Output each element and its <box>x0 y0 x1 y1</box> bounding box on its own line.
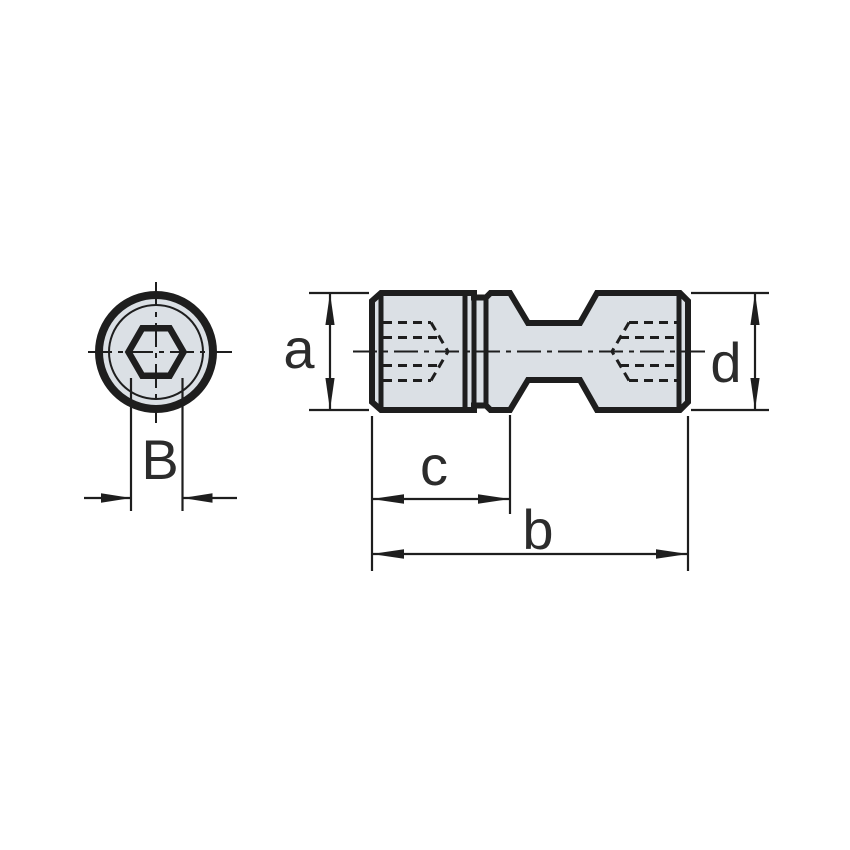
dim-a-label: a <box>283 317 315 380</box>
dim-B-label: B <box>141 428 178 491</box>
background <box>0 0 850 850</box>
dim-b-label: b <box>522 498 553 561</box>
dim-c-label: c <box>420 434 448 497</box>
dim-d-label: d <box>710 331 741 394</box>
technical-drawing: B <box>0 0 850 850</box>
drawing-canvas: B <box>0 0 850 850</box>
